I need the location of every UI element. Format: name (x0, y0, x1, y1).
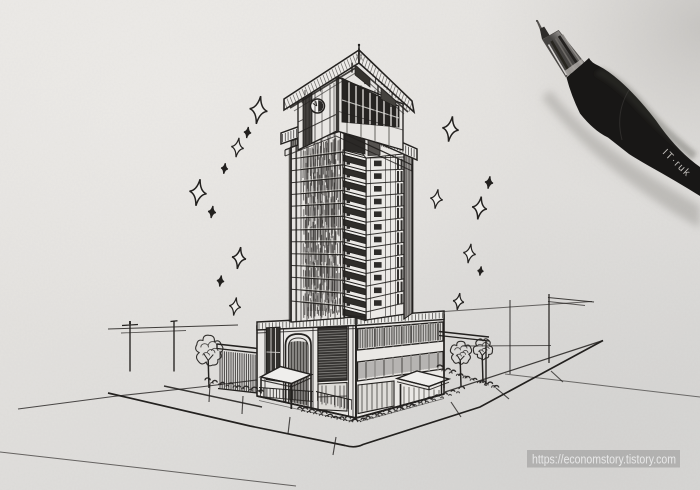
svg-text:https://economstory.tistory.co: https://economstory.tistory.com (532, 453, 676, 467)
